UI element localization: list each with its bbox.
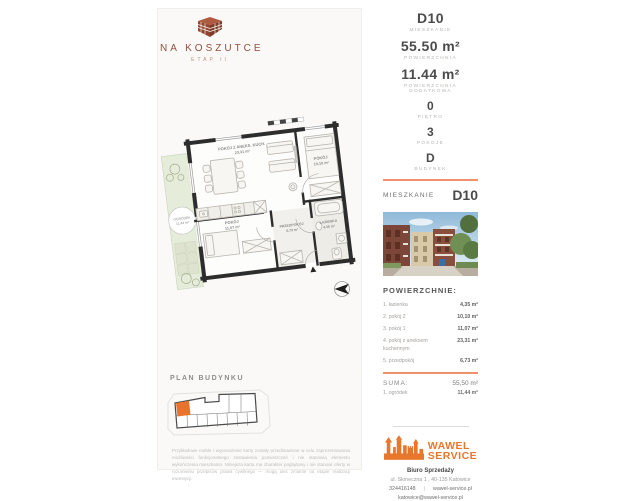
accent-divider-top <box>383 179 478 181</box>
building-photo <box>383 212 478 276</box>
areas-heading: POWIERZCHNIE: <box>383 286 478 295</box>
vendor-office-label: Biuro Sprzedaży <box>383 468 478 474</box>
building-plan-title: PLAN BUDYNKU <box>170 375 244 382</box>
apartment-details-panel: D10 MIESZKANIE 55.50 m² POWIERZCHNIA 11.… <box>383 10 478 501</box>
building-plan-map <box>163 386 275 440</box>
vendor-website-link[interactable]: wawel-service.pl <box>433 486 472 492</box>
vendor-logo: WAWEL SERVICE <box>383 434 478 462</box>
accent-divider-bottom <box>383 372 478 374</box>
development-logo: NA KOSZUTCE ETAP II <box>160 15 260 63</box>
area-row-bathroom: 1. łazienka 4,35 m² <box>383 302 478 310</box>
totals-block: SUMA: 55,50 m² 1. ogródek 11,44 m² <box>383 380 478 396</box>
vendor-email: katowice@wawel-service.pl <box>383 495 478 501</box>
area-row-hall: 5. przedpokój 6,73 m² <box>383 358 478 366</box>
stat-building: D BUDYNEK <box>383 151 478 172</box>
brick-corner-icon <box>194 15 226 39</box>
vendor-divider <box>393 426 469 427</box>
suma-row: SUMA: 55,50 m² <box>383 380 478 387</box>
vendor-wordmark: WAWEL SERVICE <box>428 441 477 462</box>
stat-floor: 0 PIĘTRO <box>383 99 478 120</box>
floorplan-card: NA KOSZUTCE ETAP II OGRÓDEK 11,44 m² <box>157 8 362 470</box>
disclaimer-text: Przykładowe meble i wyposażenie karty zo… <box>172 448 350 483</box>
compass-icon <box>335 282 350 297</box>
apartment-bar: MIESZKANIE D10 <box>383 187 478 203</box>
vendor-phone: 324416148 <box>389 486 416 492</box>
stat-rooms: 3 POKOJE <box>383 125 478 146</box>
vendor-email-link[interactable]: katowice@wawel-service.pl <box>398 495 463 501</box>
area-row-room1: 3. pokój 1 11,07 m² <box>383 326 478 334</box>
stat-area: 55.50 m² POWIERZCHNIA <box>383 38 478 61</box>
apartment-floorplan: OGRÓDEK 11,44 m² <box>158 111 363 303</box>
development-stage: ETAP II <box>160 57 260 63</box>
stat-extra-area: 11.44 m² POWIERZCHNIA DODATKOWA <box>383 66 478 94</box>
area-row-living: 4. pokój z aneksem kuchennym 23,31 m² <box>383 338 478 353</box>
stat-apartment: D10 MIESZKANIE <box>383 10 478 33</box>
vendor-block: WAWEL SERVICE Biuro Sprzedaży ul. Słonec… <box>383 426 478 501</box>
scale-bar-icon <box>268 117 304 125</box>
highlighted-unit <box>176 401 191 417</box>
vendor-contact-line: 324416148 | wawel-service.pl <box>383 486 478 492</box>
area-row-room2: 2. pokój 2 10,10 m² <box>383 314 478 322</box>
garden-row: 1. ogródek 11,44 m² <box>383 390 478 396</box>
development-name: NA KOSZUTCE <box>160 43 260 54</box>
castle-icon <box>384 434 424 462</box>
vendor-separator: | <box>424 486 425 492</box>
